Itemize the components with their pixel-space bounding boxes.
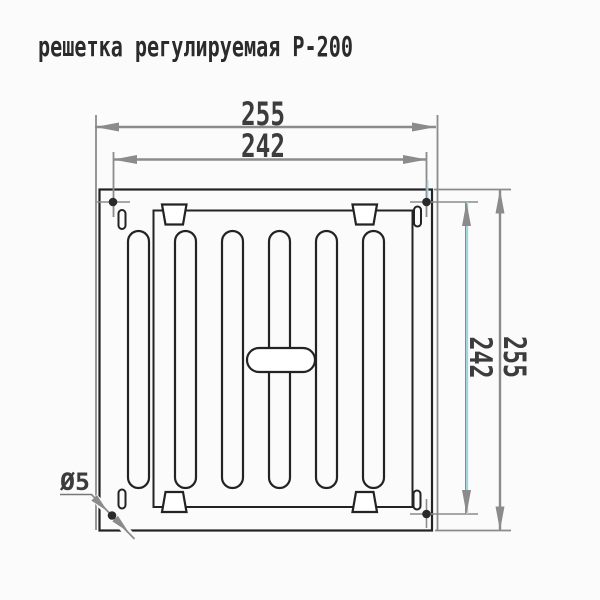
dim-outer-height: 255 [496,190,533,531]
technical-drawing-page: решетка регулируемая Р-200 [0,0,600,600]
arrow-down-icon [496,507,505,531]
guide-tab [353,492,378,512]
dim-inner-height-label: 242 [462,337,498,379]
arrow-right-icon [403,155,427,164]
guide-tab [162,205,187,225]
drawing-title: решетка регулируемая Р-200 [38,30,353,63]
edge-slot [414,207,421,227]
arrow-up-icon [462,202,471,226]
edge-slot [414,491,421,510]
louver-slot [222,231,243,488]
dim-outer-height-label: 255 [496,336,532,378]
edge-slot [119,210,126,229]
louver-slot [175,231,196,488]
mounting-hole [108,511,117,520]
guide-tab [162,492,187,512]
dim-inner-width-label: 242 [241,127,285,165]
dim-inner-width: 242 [113,127,427,165]
arrow-down-icon [462,490,471,514]
dimension-lines: 255 242 255 242 [95,95,532,531]
grille-drawing: решетка регулируемая Р-200 [0,0,600,600]
dim-inner-height: 242 [462,202,498,514]
edge-slot [119,490,126,509]
mounting-hole [422,510,431,519]
handle-slot [247,348,315,372]
grille-plate [100,190,433,531]
louver-slot [316,231,337,488]
arrow-left-icon [95,123,119,132]
louver-slot [128,231,149,488]
arrow-left-icon [113,155,137,164]
mounting-hole [422,198,431,207]
louver-slot [363,231,384,488]
guide-tab [353,205,378,225]
mounting-hole [109,198,118,207]
hole-diameter-label: Ø5 [59,468,90,496]
arrow-right-icon [412,123,436,132]
arrow-up-icon [496,190,505,214]
